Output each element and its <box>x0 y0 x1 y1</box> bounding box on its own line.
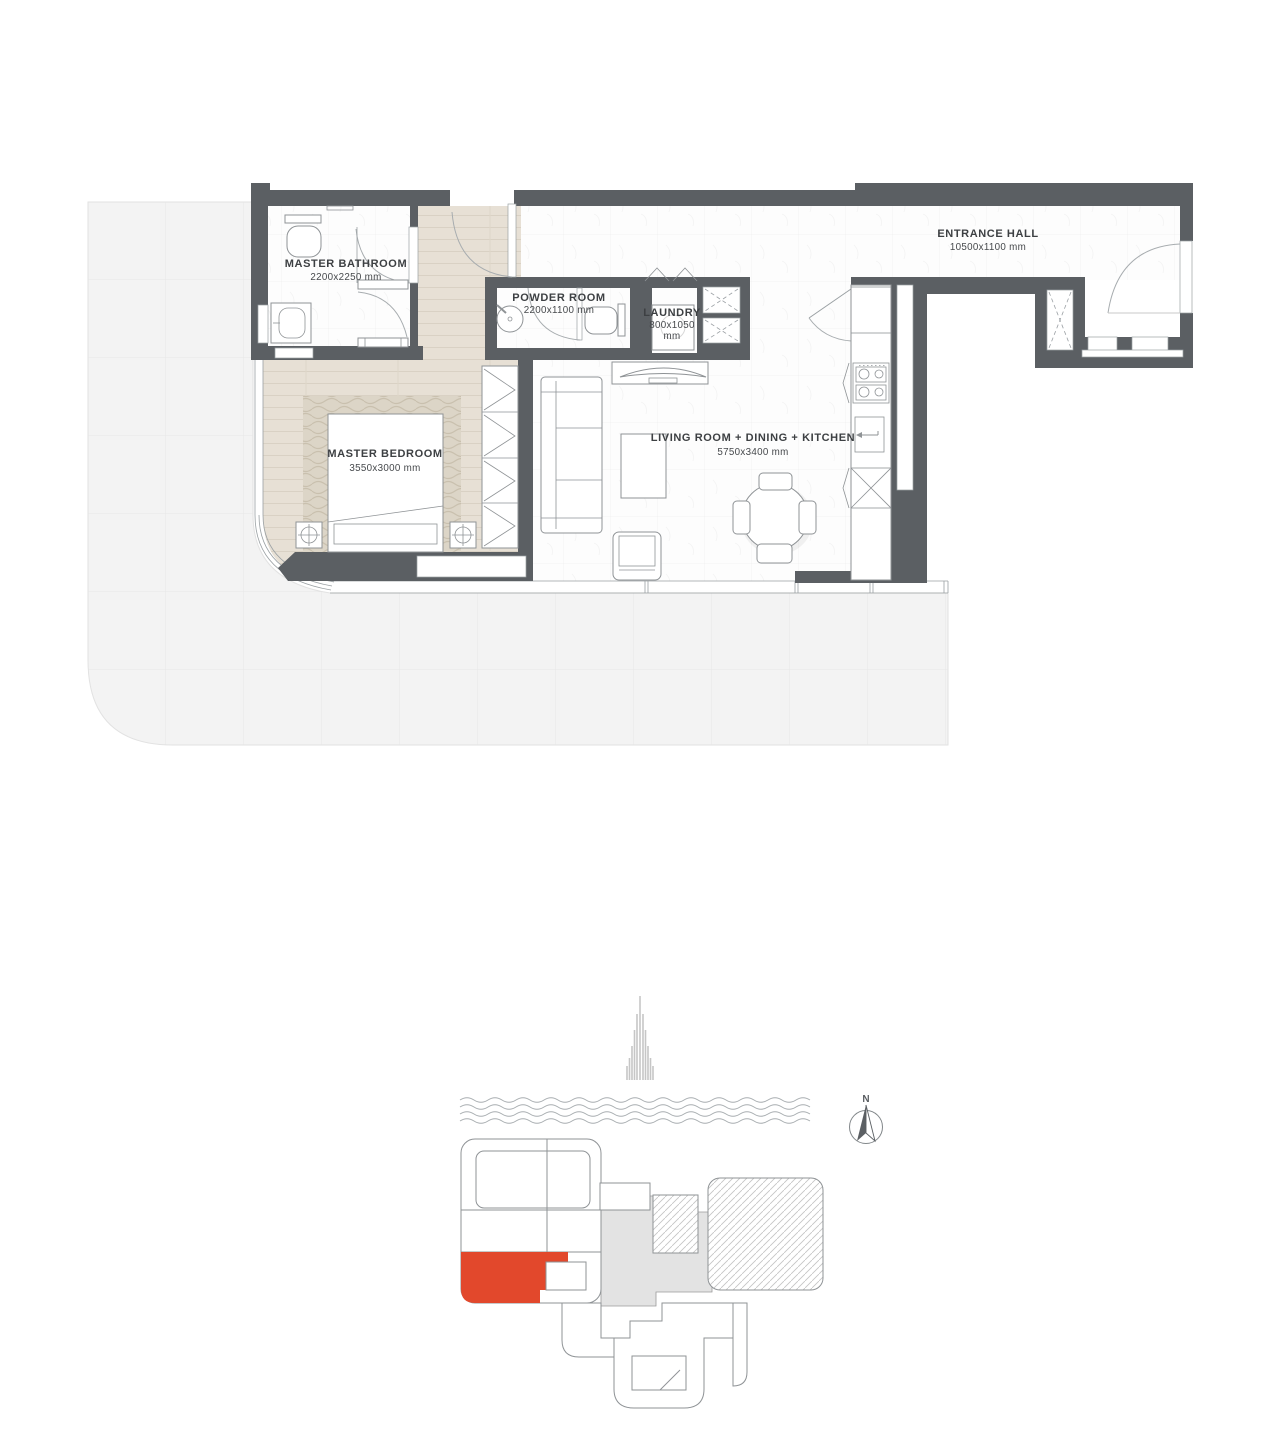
sofa <box>541 377 602 533</box>
kitchen-counter <box>851 285 891 580</box>
key-plan: N <box>460 996 883 1408</box>
wall-bathroom-right-b <box>410 283 418 360</box>
building-footprint <box>461 1139 823 1408</box>
entrance-hall-floor <box>418 204 1180 280</box>
armchair <box>613 532 661 580</box>
laundry-dims-2: mm <box>664 331 681 342</box>
toilet-cistern <box>285 215 321 223</box>
wall-bedroom-living-divider <box>518 352 533 552</box>
service-rail <box>1082 350 1183 357</box>
powder-toilet-cistern <box>618 304 625 336</box>
wall-right-lower <box>1180 313 1193 368</box>
wall-bathroom-right-a <box>410 204 418 227</box>
toilet-icon <box>287 226 321 257</box>
unit-cell-top <box>600 1183 650 1210</box>
bedroom-side-glazing <box>255 358 263 515</box>
living-room-dims: 5750x3400 mm <box>717 447 788 458</box>
wing-right-strip <box>733 1303 747 1386</box>
north-label: N <box>862 1094 869 1105</box>
dining-chair-bottom <box>757 544 792 563</box>
bathroom-bottom-niche <box>275 348 313 358</box>
service-opening-2 <box>1132 337 1168 351</box>
entrance-hall-label: ENTRANCE HALL <box>937 228 1038 240</box>
wall-right-upper <box>1180 204 1193 241</box>
kitchen-tall-unit <box>897 285 913 490</box>
duct-box-2 <box>703 318 740 343</box>
service-opening-1 <box>1088 337 1117 351</box>
unit-notch-cell <box>546 1262 586 1290</box>
bathroom-door-leaf <box>409 227 418 283</box>
bed <box>328 414 443 552</box>
north-arrow: N <box>850 1094 883 1144</box>
master-bedroom-label: MASTER BEDROOM <box>327 448 442 460</box>
laundry-dims-1: 800x1050 <box>649 320 695 331</box>
corridor-top-opening <box>450 190 514 206</box>
burj-khalifa-icon <box>627 996 653 1080</box>
water-waves-icon <box>460 1098 810 1124</box>
bathroom-wall-niche <box>258 305 268 343</box>
living-room-label: LIVING ROOM + DINING + KITCHEN <box>651 432 855 444</box>
hatched-unit-small <box>653 1195 698 1253</box>
floor-plan-page: MASTER BATHROOM 2200x2250 mm POWDER ROOM… <box>0 0 1280 1445</box>
compass-needle-left <box>857 1105 866 1141</box>
wall-top-right <box>855 183 1193 206</box>
wing-lower-left <box>562 1303 614 1357</box>
wardrobe <box>482 366 518 548</box>
master-bedroom-dims: 3550x3000 mm <box>349 463 420 474</box>
entrance-hall-dims: 10500x1100 mm <box>950 242 1026 253</box>
master-bathroom-dims: 2200x2250 mm <box>310 272 381 283</box>
master-bathroom-label: MASTER BATHROOM <box>285 258 407 270</box>
powder-basin <box>497 306 523 332</box>
shower-bench <box>358 338 408 347</box>
laundry-label: LAUNDRY <box>643 307 701 319</box>
hatched-unit-large <box>708 1178 823 1290</box>
floor-plan-canvas: MASTER BATHROOM 2200x2250 mm POWDER ROOM… <box>0 0 1280 1445</box>
dining-chair-left <box>733 501 750 534</box>
powder-room-label: POWDER ROOM <box>512 292 605 304</box>
corridor-door-leaf <box>508 204 516 277</box>
entrance-door-leaf <box>1180 241 1192 313</box>
compass-needle-right <box>866 1105 875 1141</box>
powder-room-dims: 2200x1100 mm <box>524 305 594 316</box>
dining-table <box>742 484 808 550</box>
wall-top-left <box>251 190 870 206</box>
wall-hall-south <box>891 277 1047 294</box>
bedroom-window-inset <box>417 556 526 577</box>
wall-over-counter <box>851 277 891 285</box>
dining-chair-right <box>799 501 816 534</box>
dining-chair-top <box>759 473 792 490</box>
